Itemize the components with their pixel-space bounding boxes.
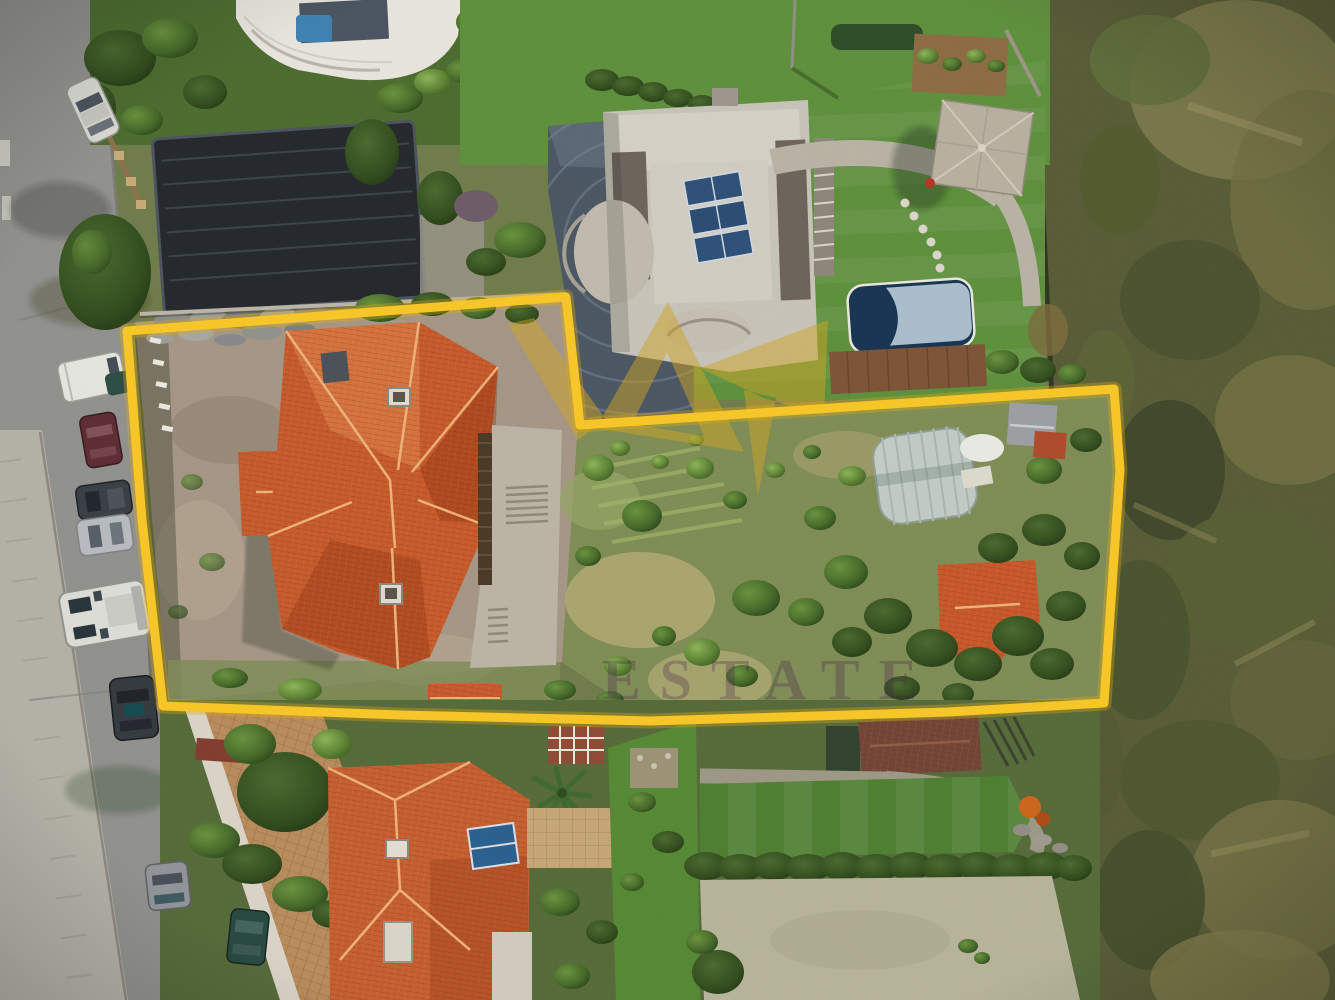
aerial-photo: ESTATE [0,0,1335,1000]
vignette-overlay [0,0,1335,1000]
